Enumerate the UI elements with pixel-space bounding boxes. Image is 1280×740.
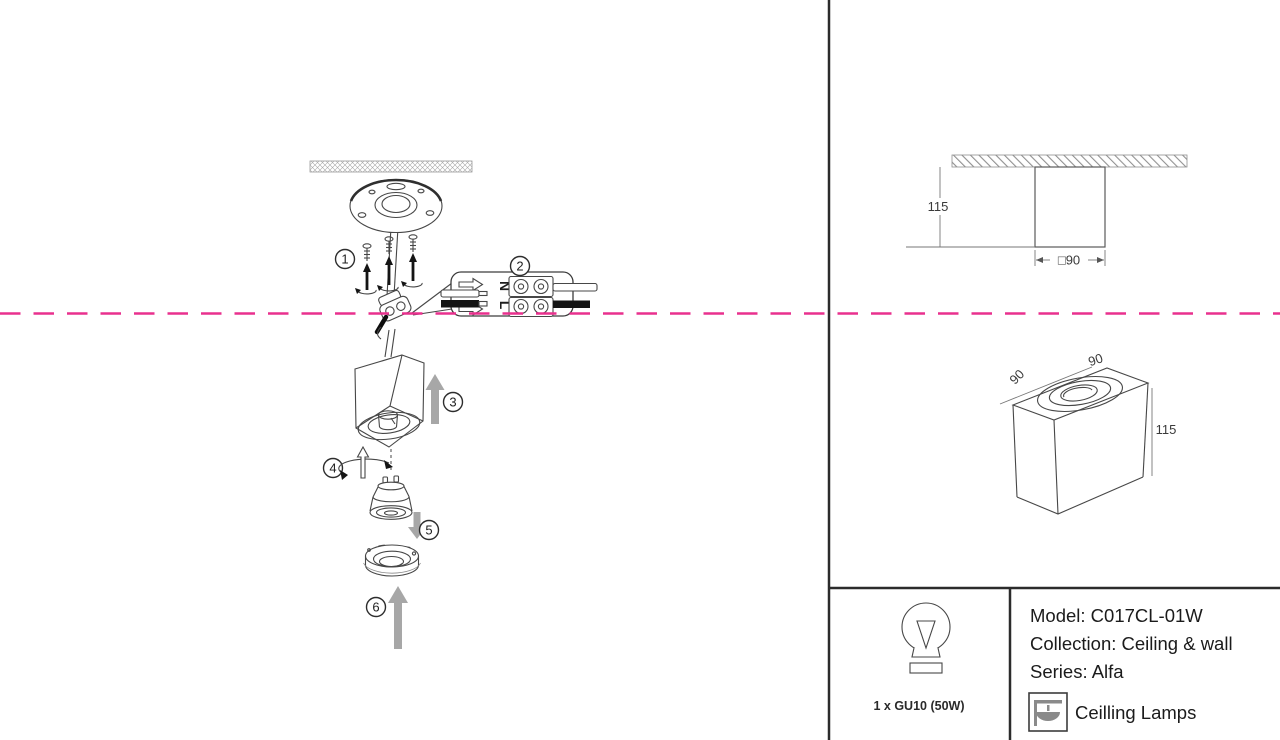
- step-5-number: 5: [425, 523, 432, 538]
- arrow-up-icon: [426, 374, 445, 424]
- step-3-number: 3: [449, 395, 456, 410]
- step-1-screws: 1: [336, 235, 423, 294]
- model-text: Model: C017CL-01W: [1030, 605, 1203, 626]
- step-2-number: 2: [516, 259, 523, 274]
- manual-drawing: 1: [0, 0, 1280, 740]
- spec-panel: 1 x GU10 (50W) Model: C017CL-01W Collect…: [873, 603, 1232, 731]
- bulb-spec-caption: 1 x GU10 (50W): [873, 699, 964, 713]
- step-5: 5: [408, 512, 439, 540]
- installation-diagram: 1: [310, 161, 597, 649]
- step-6: 6: [367, 586, 409, 649]
- gu10-bulb: [370, 476, 412, 519]
- arrow-up-icon: [388, 586, 408, 649]
- lamp-body-outline: [1035, 167, 1105, 247]
- series-text: Series: Alfa: [1030, 661, 1124, 682]
- front-view: 115 □90: [906, 155, 1187, 268]
- arrow-up-icon: [363, 253, 417, 290]
- ceiling-lamp-icon: [1029, 693, 1067, 731]
- step-6-number: 6: [372, 600, 379, 615]
- live-wire-out: [553, 301, 590, 309]
- mounting-plate: [350, 180, 442, 233]
- category-text: Ceilling Lamps: [1075, 702, 1196, 723]
- width-dimension: 90: [1086, 350, 1105, 369]
- neutral-wire-in: [441, 290, 479, 297]
- ceiling-hatch: [952, 155, 1187, 167]
- wire-connector: [375, 287, 413, 357]
- step-4-bulb: 4: [324, 447, 413, 519]
- manual-page: 1: [0, 0, 1280, 740]
- trim-ring: [364, 545, 421, 576]
- height-dimension: 115: [928, 199, 949, 214]
- iso-view: 90 90 115: [1000, 350, 1176, 514]
- step-1-number: 1: [341, 252, 348, 267]
- bulb-icon: [902, 603, 950, 673]
- terminal-block-detail: N L 2: [412, 257, 597, 317]
- arrow-up-icon: [358, 447, 369, 478]
- live-wire-in: [441, 300, 479, 308]
- width-dimension: □90: [1058, 253, 1080, 268]
- panel-borders: [829, 0, 1280, 740]
- neutral-wire-out: [553, 284, 597, 292]
- leader-line: [412, 283, 452, 313]
- lamp-body-cube: 3: [355, 355, 463, 447]
- depth-dimension: 90: [1006, 366, 1027, 387]
- ceiling-hatch: [310, 161, 472, 172]
- step-4-number: 4: [329, 461, 336, 476]
- height-dimension: 115: [1156, 422, 1177, 437]
- collection-text: Collection: Ceiling & wall: [1030, 633, 1233, 654]
